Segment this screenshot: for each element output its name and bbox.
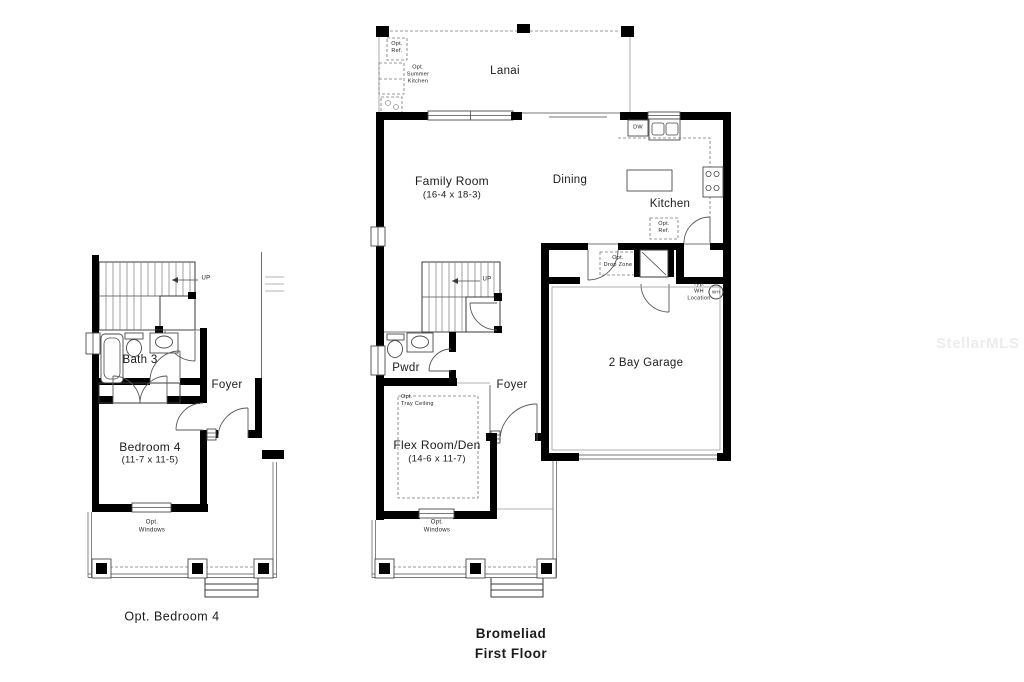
stellar-mls-watermark: StellarMLS: [936, 335, 1020, 352]
first-floor-plan: [371, 24, 731, 597]
kitchen-island: [627, 170, 672, 191]
plan-title: Bromeliad: [476, 626, 547, 642]
up-label: UP: [483, 276, 492, 284]
range-icon: [703, 167, 723, 197]
room-label-foyer: Foyer: [497, 379, 528, 393]
toilet-icon: [125, 333, 143, 357]
dims-label-family-room: (16-4 x 18-3): [423, 189, 481, 200]
porch: [88, 462, 277, 597]
door-swing: [684, 217, 710, 243]
toilet-icon: [387, 334, 404, 358]
floor-plan-drawing: [0, 0, 1024, 682]
entry-steps: [205, 578, 258, 597]
sink-icon: [150, 333, 178, 353]
powder-room: [376, 332, 457, 386]
opt-summer-kitchen-label: Opt. Summer Kitchen: [407, 64, 430, 85]
opt-drop-zone-label: Opt. Drop Zone: [604, 255, 633, 269]
room-label-foyer: Foyer: [212, 379, 243, 393]
window: [371, 227, 385, 246]
staircase: [422, 262, 502, 333]
wh-circle-label: WH: [712, 289, 720, 294]
plan-caption-left: Opt. Bedroom 4: [124, 610, 219, 625]
porch: [372, 461, 557, 597]
pantry: [634, 250, 674, 312]
dims-label-flex-room: (14-6 x 11-7): [408, 453, 466, 464]
window: [419, 509, 454, 518]
door-swing: [641, 284, 669, 312]
window: [132, 503, 171, 512]
room-label-lanai: Lanai: [490, 65, 520, 79]
window: [428, 111, 513, 120]
door-swing: [470, 303, 497, 330]
bathtub-icon: [101, 334, 123, 383]
opt-ref-label: Opt. Ref.: [658, 221, 670, 235]
understair-closet: [160, 296, 195, 330]
kitchen-sink-icon: [649, 119, 680, 140]
dishwasher-label: DW: [633, 124, 643, 131]
porch-columns: [92, 559, 273, 578]
room-label-kitchen: Kitchen: [650, 198, 690, 212]
sliding-door: [522, 113, 621, 117]
room-label-bath3: Bath 3: [122, 354, 157, 368]
summer-kitchen-outline: [379, 63, 404, 113]
door-swing: [176, 403, 203, 430]
opt-bedroom4-plan: [86, 252, 284, 597]
kitchen-window: [648, 112, 680, 119]
entry-steps: [491, 578, 543, 597]
front-door: [207, 408, 248, 440]
up-label: UP: [202, 275, 211, 283]
wh-location-label: Typ. WH Location: [687, 281, 710, 302]
sink-icon: [407, 333, 433, 352]
stair-cut-lines: [262, 252, 285, 378]
window: [371, 346, 385, 375]
window: [86, 333, 100, 354]
dims-label-bedroom4: (11-7 x 11-5): [122, 454, 179, 465]
room-label-flex-room: Flex Room/Den: [393, 438, 480, 452]
porch-columns: [375, 559, 556, 578]
room-label-bedroom4: Bedroom 4: [119, 440, 180, 454]
opt-windows-label: Opt. Windows: [139, 520, 165, 535]
kitchen-fixtures: [618, 119, 723, 241]
opt-tray-ceiling-label: Opt. Tray Ceiling: [401, 394, 434, 408]
opt-windows-label: Opt. Windows: [424, 520, 450, 535]
opt-ref-label: Opt. Ref.: [391, 41, 403, 55]
floor-plan-sheet: UP Bath 3 Foyer Bedroom 4 (11-7 x 11-5) …: [0, 0, 1024, 682]
room-label-pwdr: Pwdr: [392, 362, 419, 376]
front-door-swing: [500, 404, 537, 441]
room-label-dining: Dining: [553, 174, 587, 188]
room-label-garage: 2 Bay Garage: [609, 357, 684, 371]
room-label-family-room: Family Room: [415, 174, 489, 188]
plan-subtitle: First Floor: [475, 646, 547, 662]
garage-door: [579, 455, 717, 459]
